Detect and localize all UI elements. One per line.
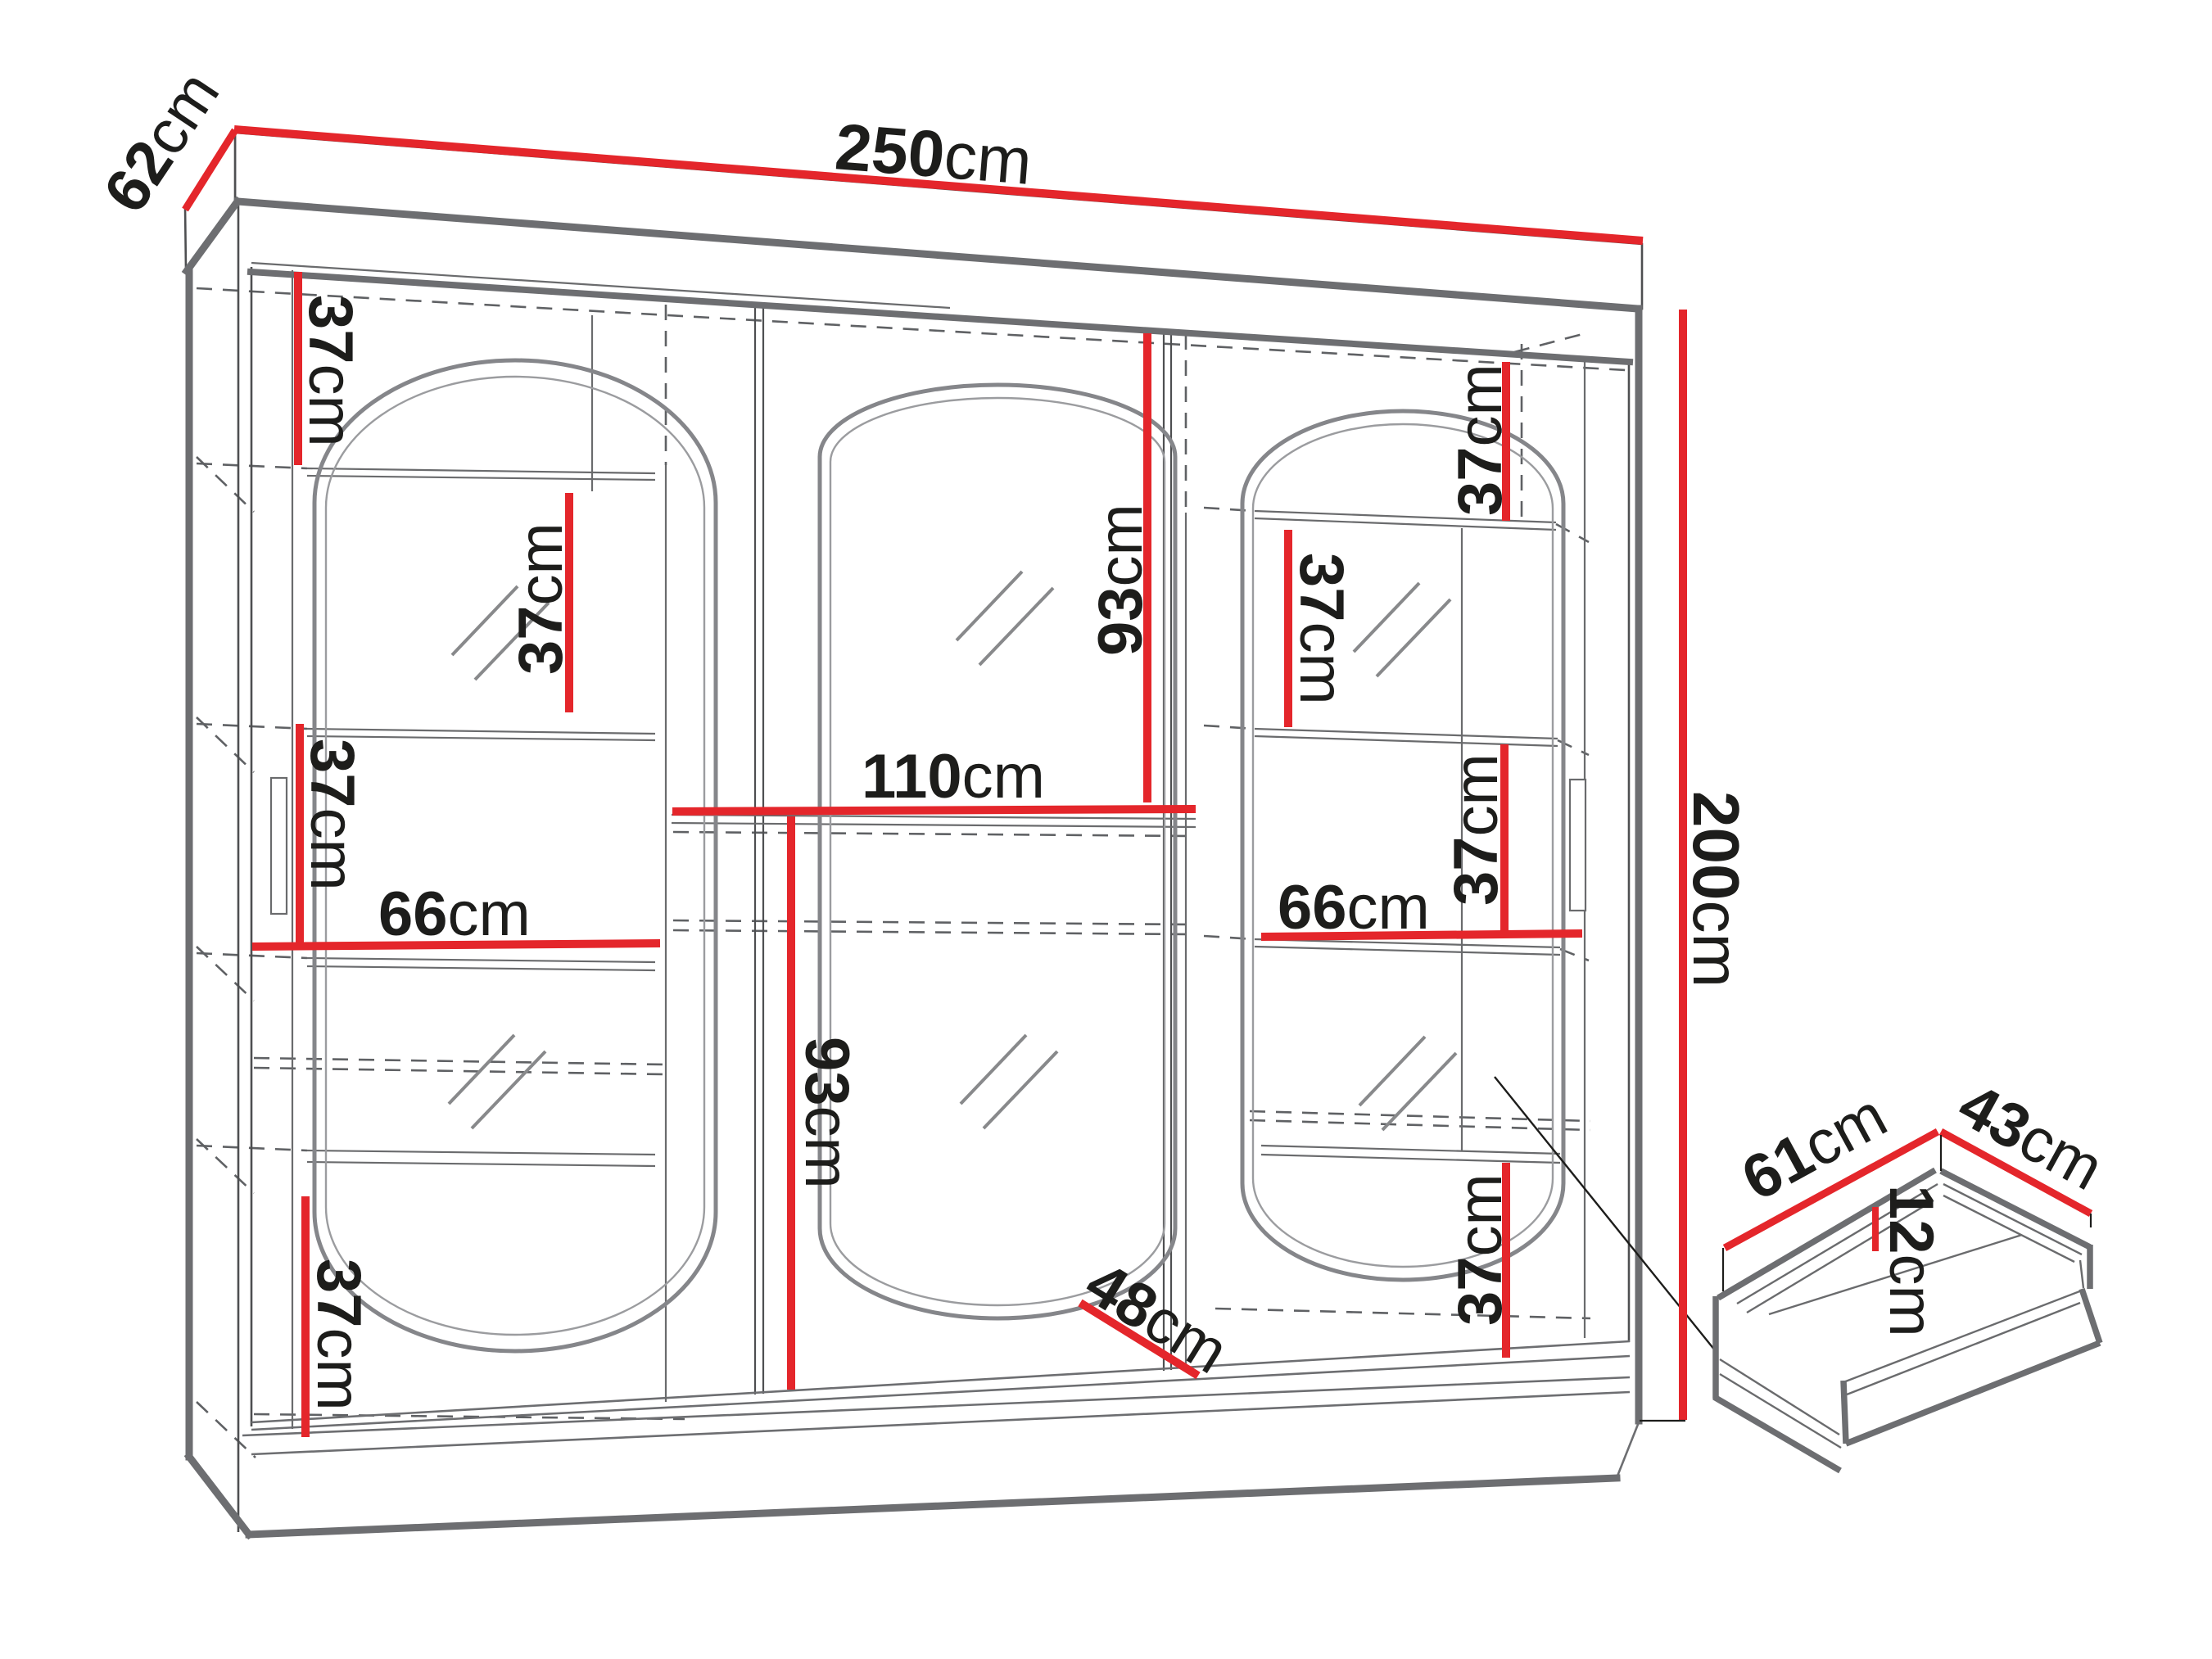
svg-text:37cm: 37cm — [1287, 553, 1356, 705]
svg-text:37cm: 37cm — [304, 1259, 373, 1411]
svg-text:93cm: 93cm — [792, 1037, 862, 1189]
svg-text:37cm: 37cm — [1445, 1173, 1515, 1326]
svg-text:250cm: 250cm — [833, 110, 1034, 198]
svg-text:93cm: 93cm — [1086, 504, 1156, 656]
svg-text:37cm: 37cm — [297, 739, 367, 891]
svg-text:200cm: 200cm — [1680, 791, 1753, 988]
svg-text:37cm: 37cm — [296, 295, 365, 447]
svg-text:37cm: 37cm — [1441, 753, 1511, 906]
svg-text:37cm: 37cm — [1445, 364, 1515, 516]
svg-text:66cm: 66cm — [378, 879, 531, 949]
svg-text:66cm: 66cm — [1278, 873, 1430, 943]
svg-text:110cm: 110cm — [862, 742, 1045, 811]
svg-text:12cm: 12cm — [1876, 1185, 1946, 1337]
svg-text:37cm: 37cm — [506, 522, 576, 675]
